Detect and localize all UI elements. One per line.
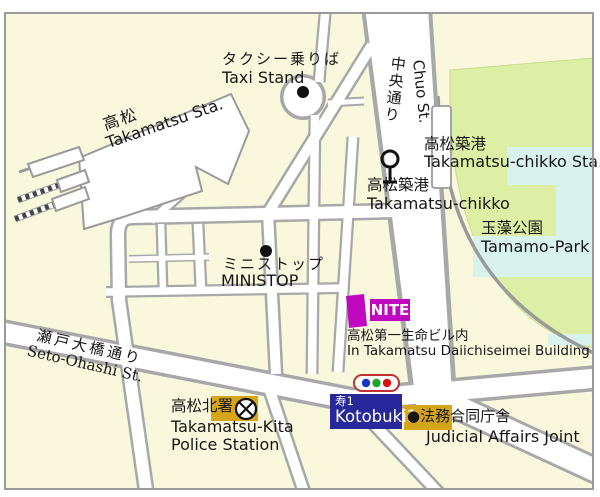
seto-ohashi-label: 瀬戸大橋通り Seto-Ohashi St. <box>25 326 148 385</box>
chikko-stop-label-en: Takamatsu-chikko <box>367 195 510 213</box>
police-label-jp: 高松北署 <box>171 398 233 415</box>
judicial-label-jp: ●法務合同庁舎 <box>407 408 510 425</box>
kotobuki-label-box: 寿1 Kotobuki1 <box>330 394 402 429</box>
police-label-en2: Police Station <box>171 436 279 454</box>
nite-label-box: NITE <box>370 299 410 321</box>
nite-note-jp: 高松第一生命ビル内 <box>347 329 469 344</box>
chuo-street-label-jp: 中央通り <box>382 55 407 125</box>
kotobuki-label-en: Kotobuki1 <box>335 408 402 425</box>
chikko-sta-label-en: Takamatsu-chikko Sta. <box>424 153 600 171</box>
takamatsu-station-label: 高松 Takamatsu Sta. <box>98 78 225 152</box>
nite-label: NITE <box>371 301 410 319</box>
nite-note-en: In Takamatsu Daiichiseimei Building <box>347 344 590 359</box>
kotobuki-label-jp: 寿1 <box>335 395 402 408</box>
chikko-stop-label-jp: 高松築港 <box>367 177 429 194</box>
ministop-label-en: MINISTOP <box>221 272 298 290</box>
judicial-label-en: Judicial Affairs Joint <box>426 428 580 446</box>
tamamo-park-label-jp: 玉藻公園 <box>481 220 543 237</box>
taxi-stand-label-jp: タクシー乗りば <box>222 51 341 68</box>
taxi-stand-label-en: Taxi Stand <box>222 69 304 87</box>
map-labels: タクシー乗りば Taxi Stand 高松 Takamatsu Sta. 中央通… <box>0 0 600 497</box>
chikko-sta-label-jp: 高松築港 <box>424 136 486 153</box>
police-label-en1: Takamatsu-Kita <box>171 418 294 436</box>
map-page: タクシー乗りば Taxi Stand 高松 Takamatsu Sta. 中央通… <box>0 0 600 497</box>
chuo-street-label-en: Chuo St. <box>409 59 432 124</box>
tamamo-park-label-en: Tamamo-Park <box>481 238 589 256</box>
